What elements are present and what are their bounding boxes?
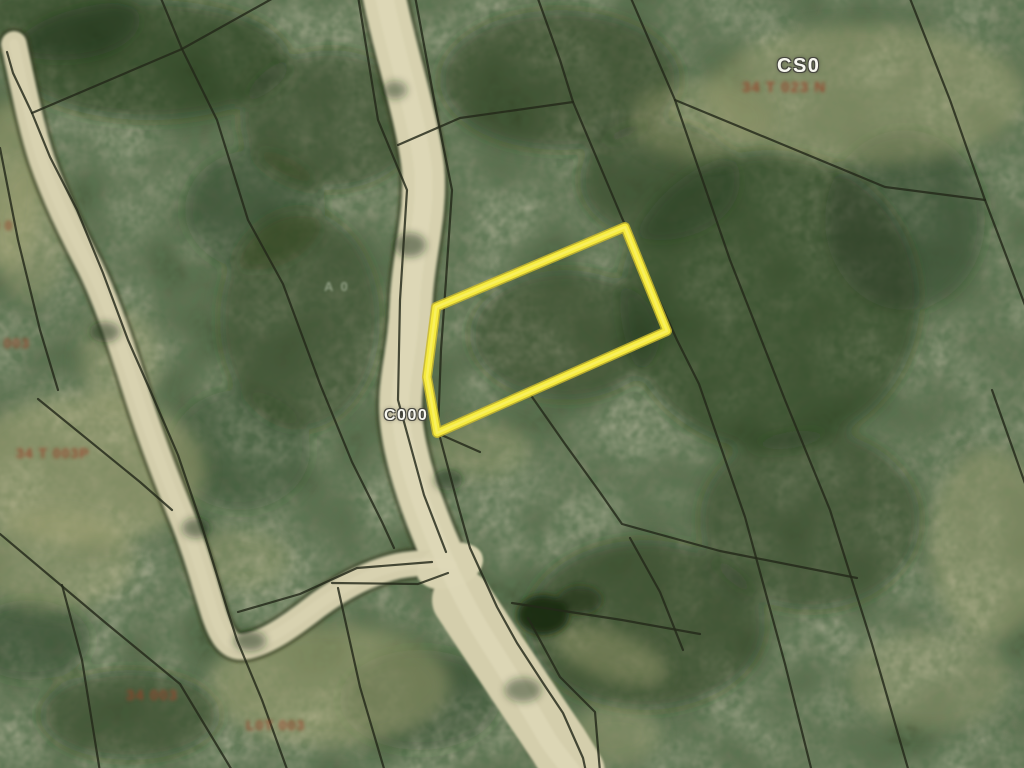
satellite-map-canvas[interactable] <box>0 0 1024 768</box>
pond-dark-area <box>517 595 569 635</box>
satellite-map-viewport[interactable]: CS0C000A 034 T 023 N0 00 00334 T 003P34 … <box>0 0 1024 768</box>
